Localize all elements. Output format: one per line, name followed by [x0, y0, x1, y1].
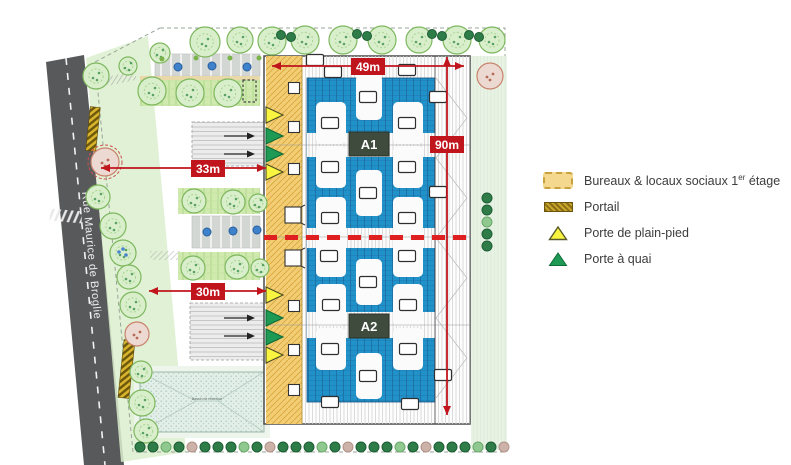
shrub — [382, 442, 392, 452]
tree-dot — [205, 45, 208, 48]
tree-dot — [224, 94, 227, 97]
tree — [138, 77, 166, 105]
tree-dot — [186, 94, 189, 97]
strip-opening — [289, 164, 300, 175]
site-plan-page: Rue Maurice de Broglie — [0, 0, 791, 465]
car-dot — [203, 228, 211, 236]
shrub — [174, 442, 184, 452]
skylight — [399, 251, 416, 262]
basin-label: Bassin de rétention — [192, 397, 222, 401]
tree-blue-dot — [117, 250, 121, 254]
tree-dot — [130, 62, 133, 65]
tree-dot — [488, 41, 491, 44]
tree — [214, 79, 242, 107]
strip-opening — [289, 83, 300, 94]
tree-dot — [194, 204, 197, 207]
tree-dot — [94, 198, 97, 201]
tree-dot — [233, 268, 236, 271]
tree-dot — [239, 263, 242, 266]
tree-dot — [146, 434, 149, 437]
skylight — [360, 188, 377, 199]
tree-dot — [101, 162, 104, 165]
shrub — [213, 442, 223, 452]
tree-dot — [142, 432, 145, 435]
shrub — [482, 193, 492, 203]
strip-opening — [289, 345, 300, 356]
tree-dot — [125, 278, 128, 281]
tree — [110, 240, 136, 266]
tree — [329, 26, 357, 54]
tree — [86, 185, 110, 209]
tree-pink — [91, 148, 119, 176]
skylight — [322, 397, 339, 408]
tree-dot — [272, 44, 275, 47]
tree-dot — [136, 337, 139, 340]
tree-blue-dot — [121, 247, 125, 251]
tree-dot — [378, 41, 381, 44]
shrub — [363, 32, 372, 41]
shrub — [395, 442, 405, 452]
strip-opening-large — [285, 207, 301, 223]
shrub — [239, 442, 249, 452]
strip-opening-large — [285, 250, 301, 266]
tree-dot — [143, 368, 146, 371]
shrub — [434, 442, 444, 452]
tree-dot — [119, 254, 122, 257]
legend-item-bureaux-label: Bureaux & locaux sociaux 1er étage — [584, 173, 780, 188]
planting-dot — [228, 56, 233, 61]
shrub — [161, 442, 171, 452]
legend-item-portail-label: Portail — [584, 200, 619, 214]
tree-dot — [345, 36, 348, 39]
skylight — [399, 118, 416, 129]
tree-dot — [260, 271, 263, 274]
shrub — [408, 442, 418, 452]
car-dot — [253, 226, 261, 234]
shrub — [353, 30, 362, 39]
tree — [227, 27, 253, 53]
car-dot — [243, 63, 251, 71]
dock-apron-upper — [192, 122, 266, 166]
tree-dot — [260, 199, 263, 202]
shrub — [135, 442, 145, 452]
skylight — [322, 162, 339, 173]
skylight — [400, 300, 417, 311]
tree-dot — [230, 89, 233, 92]
tree-dot — [305, 43, 308, 46]
tree-dot — [492, 43, 495, 46]
tree-dot — [415, 41, 418, 44]
warehouse-building — [264, 55, 470, 425]
skylight — [325, 67, 342, 78]
dimension-30m-label: 30m — [196, 285, 220, 299]
skylight — [360, 371, 377, 382]
tree-dot — [274, 37, 277, 40]
shrub — [369, 442, 379, 452]
tree-dot — [233, 205, 236, 208]
tree — [117, 265, 141, 289]
tree — [368, 26, 396, 54]
tree-dot — [195, 264, 198, 267]
tree-dot — [98, 200, 101, 203]
dock-apron-lower — [190, 303, 266, 360]
tree-dot — [98, 72, 101, 75]
tree-dot — [128, 69, 131, 72]
tree — [443, 26, 471, 54]
tree-dot — [152, 94, 155, 97]
tree-dot — [237, 270, 240, 273]
tree-dot — [189, 269, 192, 272]
tree-dot — [115, 222, 118, 225]
strip-opening — [289, 301, 300, 312]
skylight — [321, 251, 338, 262]
tree-dot — [92, 77, 95, 80]
shrub — [291, 442, 301, 452]
tree-dot — [148, 92, 151, 95]
tree-dot — [156, 54, 159, 57]
skylight — [323, 300, 340, 311]
tree — [120, 292, 146, 318]
legend-item-portail: Portail — [543, 196, 780, 217]
building-a1-label: A1 — [349, 132, 389, 156]
shrub — [278, 442, 288, 452]
skylight — [399, 213, 416, 224]
shrub — [317, 442, 327, 452]
dimension-33m-label: 33m — [196, 162, 220, 176]
tree-dot — [343, 43, 346, 46]
tree-dot — [228, 96, 231, 99]
building-a2-label: A2 — [349, 314, 389, 338]
shrub — [343, 442, 353, 452]
skylight — [360, 277, 377, 288]
skylight — [399, 162, 416, 173]
tree — [134, 419, 158, 443]
shrub — [482, 217, 492, 227]
car-dot — [229, 227, 237, 235]
tree-dot — [307, 36, 310, 39]
skylight — [430, 92, 447, 103]
tree-dot — [486, 76, 489, 79]
tree-dot — [142, 406, 145, 409]
shrub — [486, 442, 496, 452]
tree — [221, 190, 245, 214]
shrub — [277, 31, 286, 40]
tree-blue-dot — [124, 253, 128, 257]
shrub — [421, 442, 431, 452]
tree — [225, 255, 249, 279]
tree-dot — [148, 427, 151, 430]
tree — [100, 213, 126, 239]
tree-dot — [100, 193, 103, 196]
tree-dot — [268, 42, 271, 45]
tree-dot — [144, 399, 147, 402]
tree-dot — [421, 36, 424, 39]
tree-dot — [138, 404, 141, 407]
tree-dot — [229, 203, 232, 206]
strip-opening — [289, 122, 300, 133]
tree-dot — [196, 197, 199, 200]
tree-dot — [419, 43, 422, 46]
svg-text:A2: A2 — [361, 319, 378, 334]
legend-item-porte-plain-pied: Porte de plain-pied — [543, 222, 780, 243]
skylight — [322, 213, 339, 224]
tree — [182, 189, 206, 213]
tree — [181, 256, 205, 280]
tree-dot — [262, 264, 265, 267]
tree-dot — [236, 41, 239, 44]
shrub — [482, 229, 492, 239]
tree — [176, 79, 204, 107]
shrub — [465, 31, 474, 40]
skylight — [307, 55, 324, 66]
skylight — [400, 344, 417, 355]
shrub — [252, 442, 262, 452]
tree-dot — [107, 159, 110, 162]
tree — [129, 390, 155, 416]
tree-dot — [113, 229, 116, 232]
skylight — [430, 187, 447, 198]
legend-item-porte-quai: Porte à quai — [543, 248, 780, 269]
shrub — [475, 33, 484, 42]
tree-dot — [129, 306, 132, 309]
shrub — [356, 442, 366, 452]
shrub — [447, 442, 457, 452]
shrub — [330, 442, 340, 452]
car-dot — [208, 62, 216, 70]
planting-dot — [257, 56, 262, 61]
shrub — [226, 442, 236, 452]
tree-dot — [193, 271, 196, 274]
shrub — [287, 33, 296, 42]
tree — [249, 194, 267, 212]
skylight — [322, 118, 339, 129]
shrub — [482, 241, 492, 251]
hatched-path-mark-mid — [150, 251, 182, 260]
tree-dot — [133, 334, 136, 337]
shrub — [304, 442, 314, 452]
svg-text:A1: A1 — [361, 137, 378, 152]
bureaux-swatch-icon — [543, 172, 573, 189]
tree-dot — [137, 373, 140, 376]
shrub — [499, 442, 509, 452]
tree-dot — [192, 89, 195, 92]
portail-swatch-icon — [543, 202, 573, 212]
planting-dot — [194, 56, 199, 61]
tree-dot — [201, 43, 204, 46]
tree-dot — [190, 96, 193, 99]
tree — [251, 259, 269, 277]
shrub — [200, 442, 210, 452]
tree — [119, 57, 137, 75]
shrub — [187, 442, 197, 452]
tree-dot — [240, 43, 243, 46]
legend-item-bureaux: Bureaux & locaux sociaux 1er étage — [543, 170, 780, 191]
tree-pink — [125, 322, 149, 346]
shrub — [265, 442, 275, 452]
shrub — [473, 442, 483, 452]
tree-dot — [135, 301, 138, 304]
shrub — [428, 30, 437, 39]
tree-dot — [459, 36, 462, 39]
tree-dot — [235, 198, 238, 201]
tree-dot — [162, 49, 165, 52]
tree-dot — [131, 273, 134, 276]
tree — [130, 361, 152, 383]
tree-dot — [141, 375, 144, 378]
tree-dot — [109, 227, 112, 230]
dimension-49m-label: 49m — [356, 60, 380, 74]
dimension-90m-label: 90m — [435, 138, 459, 152]
tree-dot — [125, 249, 128, 252]
tree-dot — [256, 269, 259, 272]
shrub — [482, 205, 492, 215]
legend: Bureaux & locaux sociaux 1er étage Porta… — [543, 170, 780, 269]
tree-dot — [382, 43, 385, 46]
tree-dot — [96, 79, 99, 82]
tree-dot — [339, 41, 342, 44]
shrub — [438, 32, 447, 41]
tree-dot — [207, 38, 210, 41]
tree — [83, 63, 109, 89]
tree-pink — [477, 63, 503, 89]
skylight — [435, 370, 452, 381]
tree-dot — [453, 41, 456, 44]
skylight — [360, 92, 377, 103]
tree-dot — [494, 36, 497, 39]
tree — [291, 26, 319, 54]
skylight — [402, 399, 419, 410]
tree-dot — [258, 206, 261, 209]
tree-dot — [129, 280, 132, 283]
shrub — [460, 442, 470, 452]
planting-dot — [160, 57, 165, 62]
tree-dot — [254, 204, 257, 207]
shrub — [148, 442, 158, 452]
tree-dot — [384, 36, 387, 39]
tree-dot — [242, 36, 245, 39]
tree-dot — [489, 79, 492, 82]
tree-dot — [301, 41, 304, 44]
parking-strip-middle — [192, 216, 260, 248]
tree-dot — [154, 87, 157, 90]
skylight — [322, 344, 339, 355]
car-dot — [174, 63, 182, 71]
tree-dot — [457, 43, 460, 46]
green-triangle-icon — [543, 251, 573, 267]
tree-dot — [190, 202, 193, 205]
tree — [190, 27, 220, 57]
tree-dot — [124, 67, 127, 70]
east-green-strip-texture — [471, 56, 507, 450]
tree-dot — [133, 308, 136, 311]
legend-item-porte-quai-label: Porte à quai — [584, 252, 651, 266]
tree-dot — [492, 73, 495, 76]
legend-item-porte-plain-pied-label: Porte de plain-pied — [584, 226, 689, 240]
yellow-triangle-icon — [543, 225, 573, 241]
tree-dot — [139, 331, 142, 334]
strip-opening — [289, 385, 300, 396]
